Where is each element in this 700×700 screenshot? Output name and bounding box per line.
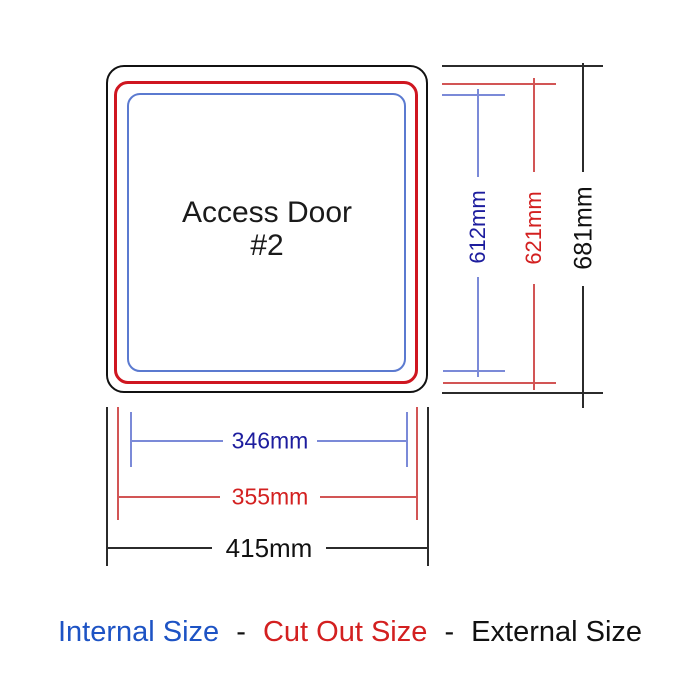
external-width-dim-line-right bbox=[326, 547, 428, 549]
legend-separator-2: - bbox=[444, 616, 454, 648]
cutout-height-dim-line-bottom bbox=[533, 284, 535, 390]
external-height-label: 681mm bbox=[572, 186, 597, 269]
door-label-line1: Access Door bbox=[182, 196, 352, 229]
external-left-extension-line bbox=[106, 407, 108, 566]
legend-internal-label: Internal Size bbox=[58, 616, 219, 648]
legend-external-label: External Size bbox=[471, 616, 642, 648]
legend-cutout-label: Cut Out Size bbox=[263, 616, 427, 648]
internal-height-label: 612mm bbox=[467, 190, 489, 263]
cutout-height-dim-line-top bbox=[533, 78, 535, 172]
internal-height-dim-line-bottom bbox=[477, 277, 479, 377]
internal-top-extension-line bbox=[442, 94, 505, 96]
external-width-label: 415mm bbox=[226, 535, 313, 561]
internal-width-label: 346mm bbox=[232, 430, 309, 453]
legend: Internal Size - Cut Out Size - External … bbox=[0, 617, 700, 649]
external-width-dim-line-left bbox=[107, 547, 212, 549]
cutout-width-dim-line-left bbox=[118, 496, 220, 498]
cutout-width-dim-line-right bbox=[320, 496, 417, 498]
legend-separator-1: - bbox=[236, 616, 246, 648]
internal-width-dim-line-left bbox=[131, 440, 223, 442]
cutout-width-label: 355mm bbox=[232, 486, 309, 509]
internal-bottom-extension-line bbox=[443, 370, 505, 372]
door-label-line2: #2 bbox=[182, 229, 352, 262]
internal-width-dim-line-right bbox=[317, 440, 407, 442]
door-label: Access Door #2 bbox=[182, 196, 352, 262]
external-height-dim-line-bottom bbox=[582, 286, 584, 408]
cutout-height-label: 621mm bbox=[523, 191, 545, 264]
cutout-right-extension-line bbox=[416, 407, 418, 520]
external-right-extension-line bbox=[427, 407, 429, 566]
cutout-top-extension-line bbox=[442, 83, 556, 85]
internal-height-dim-line-top bbox=[477, 89, 479, 177]
cutout-bottom-extension-line bbox=[443, 382, 556, 384]
cutout-left-extension-line bbox=[117, 407, 119, 520]
external-top-extension-line bbox=[442, 65, 603, 67]
external-bottom-extension-line bbox=[442, 392, 603, 394]
external-height-dim-line-top bbox=[582, 63, 584, 172]
